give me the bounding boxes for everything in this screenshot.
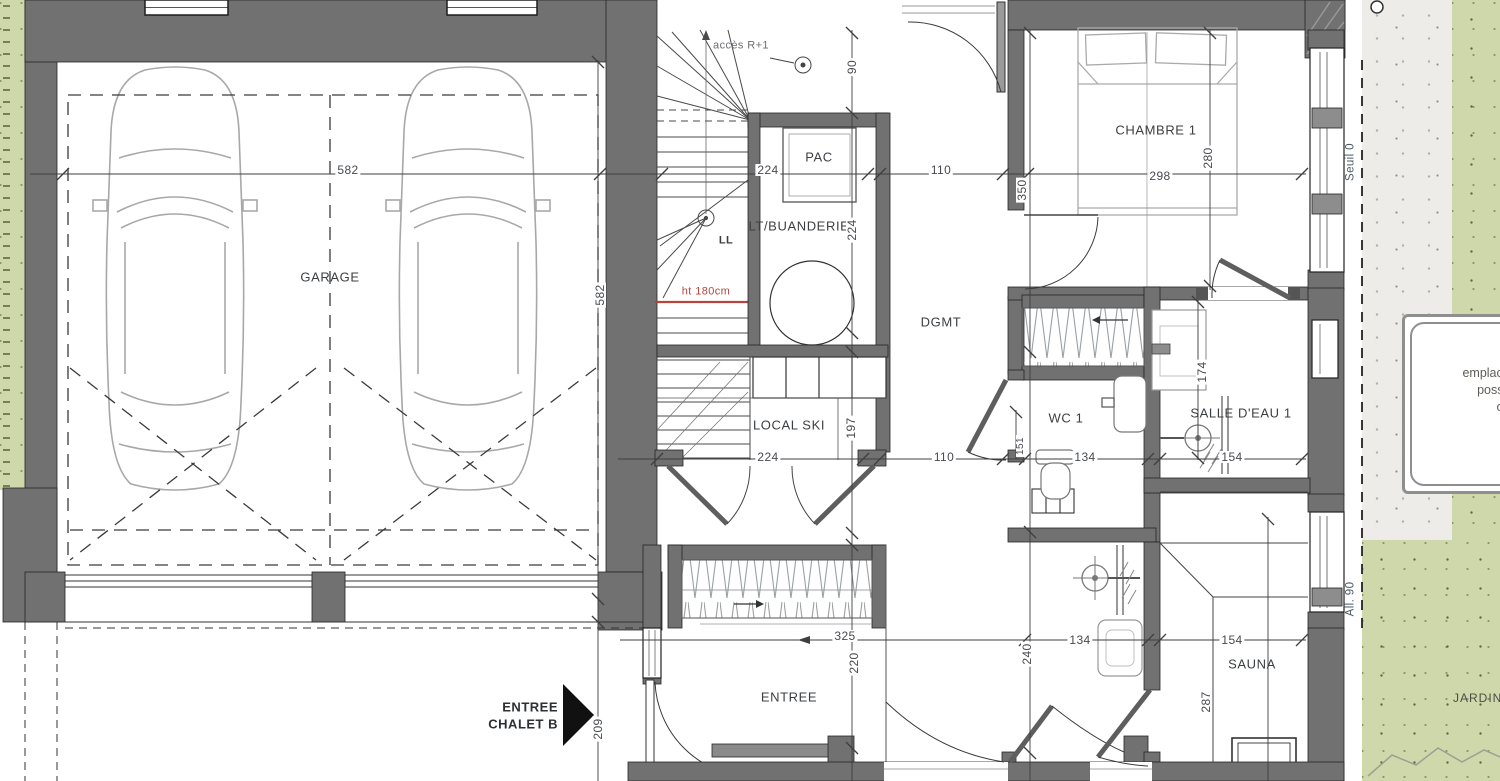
dim-hall-bottom: 110 [932, 451, 956, 463]
chambre-door [1024, 215, 1098, 289]
entree-window [643, 628, 661, 678]
label-entree-chalet-1: ENTREE [502, 700, 558, 715]
entry-arrow-icon [563, 684, 594, 746]
dim-sde1-width: 154 [1219, 451, 1244, 463]
dim-garage-width: 582 [335, 164, 360, 176]
label-allege: All. 90 [1345, 582, 1357, 617]
dim-hall-top: 110 [929, 164, 953, 176]
dim-sauna-depth: 287 [1200, 689, 1212, 714]
label-entree-chalet-2: CHALET B [488, 717, 558, 732]
vestibule-double-doors [668, 466, 874, 524]
label-acces: accès R+1 [713, 41, 769, 52]
sauna-interior [1160, 492, 1308, 770]
emplacement-line1: emplacement [1462, 366, 1500, 380]
car-right [386, 67, 550, 490]
label-entree: ENTREE [761, 691, 817, 704]
driveway-dashes [25, 622, 655, 781]
emplacement-line3: o [1497, 400, 1500, 414]
dim-sde2-depth: 240 [1021, 641, 1033, 666]
water-heater [770, 261, 854, 345]
bed [1078, 28, 1237, 215]
dim-stair-access: 90 [846, 58, 858, 76]
car-left [93, 67, 257, 490]
dim-sde1-depth: 174 [1196, 359, 1208, 384]
sde2-fixtures [1073, 545, 1142, 676]
dim-ski-depth: 197 [845, 415, 857, 440]
dim-chambre-width: 298 [1147, 170, 1172, 182]
label-dgmt: DGMT [921, 316, 962, 329]
survey-point [1371, 1, 1383, 13]
dim-garage-depth: 582 [594, 282, 606, 307]
label-local-ski: LOCAL SKI [753, 419, 825, 432]
sde1-fixtures [1152, 310, 1228, 474]
dim-ski-width: 224 [755, 451, 780, 463]
dim-chambre-depth: 280 [1202, 145, 1214, 170]
dim-wc1-recess: 151 [1016, 435, 1026, 457]
rocks-contour [1368, 748, 1500, 776]
label-pac: PAC [805, 151, 833, 164]
staircase [657, 30, 755, 460]
label-ht180: ht 180cm [682, 287, 730, 298]
pac-unit [783, 128, 856, 202]
label-seuil: Seuil 0 [1345, 143, 1357, 181]
bottom-wall [628, 762, 1344, 781]
label-sauna: SAUNA [1228, 658, 1276, 671]
ceiling-light-icon [770, 57, 811, 73]
chambre-walls [1008, 0, 1345, 462]
bottom-doors [884, 690, 1152, 769]
dim-placard-width: 325 [832, 630, 857, 642]
wc1-placard [1022, 308, 1144, 366]
wc1-door [968, 380, 1006, 460]
dim-buanderie-depth: 224 [846, 217, 858, 242]
entree-placard [682, 560, 872, 624]
label-jardin: JARDIN [1453, 691, 1500, 705]
dim-wc1-width: 134 [1072, 451, 1097, 463]
emplacement-line2: possible [1477, 383, 1500, 397]
dim-entrance-offset: 209 [592, 716, 604, 741]
label-garage: GARAGE [300, 271, 359, 284]
dgmt-top-door [902, 2, 1005, 92]
label-buanderie: LT/BUANDERIE [749, 220, 850, 233]
dim-sauna-width: 154 [1219, 634, 1244, 646]
dim-entree-depth: 220 [848, 650, 860, 675]
label-sde1: SALLE D'EAU 1 [1190, 407, 1291, 420]
dim-sde2-width: 134 [1067, 634, 1092, 646]
dim-buanderie-width: 224 [755, 164, 780, 176]
label-wc1: WC 1 [1049, 412, 1084, 425]
dim-dgmt-length: 350 [1016, 177, 1028, 202]
facade-right [1308, 30, 1344, 781]
label-chambre1: CHAMBRE 1 [1115, 124, 1196, 137]
label-washer: LL [719, 236, 733, 247]
emplacement-note-box: emplacement possible o [1402, 314, 1500, 494]
wc1-fixtures [1036, 376, 1146, 499]
floor-plan: GARAGE CHAMBRE 1 DGMT WC 1 SALLE D'EAU 1… [0, 0, 1500, 781]
